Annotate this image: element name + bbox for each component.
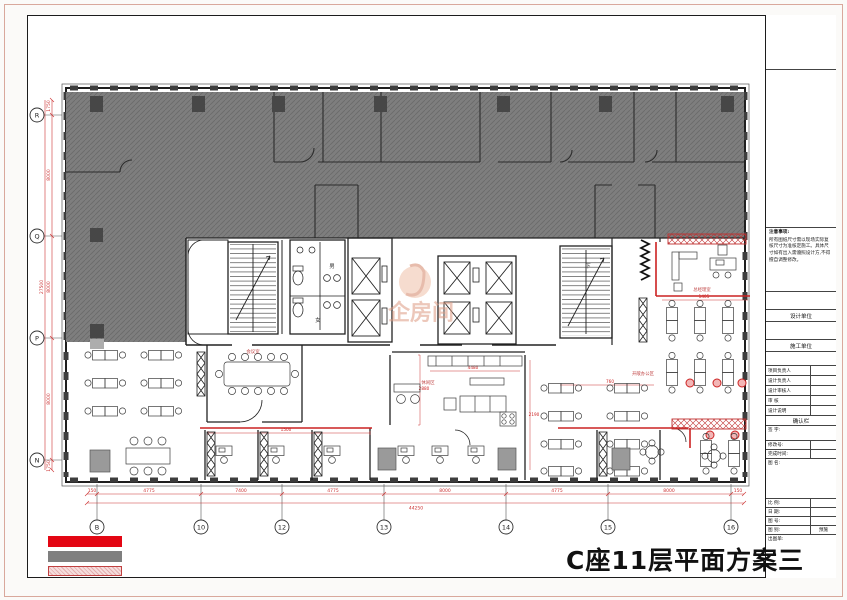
row-design-note: 设计说明	[766, 406, 836, 416]
floor-plan-svg: 1500 2880 4480 1405 760 2190 会议室 休闲区 总经理…	[0, 0, 847, 600]
confirm-label: 确认栏	[766, 416, 836, 426]
notes-title: 注意事项:	[769, 230, 833, 237]
svg-text:1750: 1750	[46, 460, 52, 472]
row-project-lead: 项目负责人	[766, 366, 836, 376]
svg-text:总经理室: 总经理室	[693, 286, 711, 293]
svg-text:15: 15	[604, 524, 612, 532]
svg-text:4775: 4775	[143, 488, 155, 494]
drawing-title: C座11层平面方案三	[566, 541, 762, 577]
watermark-text: 企房间	[387, 300, 454, 326]
bottom-dim-chain	[85, 492, 746, 505]
svg-text:10: 10	[197, 524, 205, 532]
wc-fixtures	[293, 247, 340, 317]
red-hatch-cabinet-top	[668, 234, 746, 244]
svg-text:44250: 44250	[409, 506, 423, 512]
red-hatch-cabinet-mid	[672, 419, 746, 429]
svg-text:女: 女	[315, 316, 321, 324]
red-highlight-chairs	[686, 379, 746, 439]
svg-text:12: 12	[278, 524, 286, 532]
construction-unit-label: 施工单位	[766, 340, 836, 352]
svg-text:B: B	[95, 524, 99, 532]
legend-swatch-gray	[48, 551, 122, 562]
svg-text:1750: 1750	[46, 100, 52, 112]
svg-text:14: 14	[502, 524, 510, 532]
svg-text:8000: 8000	[46, 393, 52, 405]
svg-text:男: 男	[329, 263, 335, 270]
title-block-notes: 注意事项: 所有图纸尺寸需以现场实际复核尺寸为准核定施工。具体尺寸如有出入需遵照…	[766, 228, 836, 292]
row-drawing-name: 图 名:	[766, 459, 836, 499]
svg-text:2190: 2190	[529, 412, 540, 417]
svg-text:1500: 1500	[281, 427, 292, 432]
svg-text:R: R	[35, 112, 40, 120]
svg-text:下: 下	[585, 263, 591, 270]
svg-text:150: 150	[734, 488, 743, 494]
drawing-sheet: 1500 2880 4480 1405 760 2190 会议室 休闲区 总经理…	[0, 0, 847, 600]
svg-text:8000: 8000	[46, 169, 52, 181]
row-design-lead: 设计负责人	[766, 376, 836, 386]
row-scale: 比 例:	[766, 499, 836, 508]
svg-text:N: N	[35, 457, 40, 465]
legend-swatch-hatch	[48, 566, 122, 576]
row-revision: 修改号:	[766, 441, 836, 450]
notes-body: 所有图纸尺寸需以现场实际复核尺寸为准核定施工。具体尺寸如有出入需遵照设计方,不得…	[769, 238, 830, 263]
svg-text:开敞办公区: 开敞办公区	[632, 370, 655, 377]
core	[186, 238, 744, 345]
design-unit-label: 设计单位	[766, 310, 836, 322]
title-block-empty-box	[766, 70, 836, 228]
svg-text:4775: 4775	[327, 488, 339, 494]
svg-text:27500: 27500	[39, 280, 45, 294]
svg-text:150: 150	[88, 488, 97, 494]
svg-text:8000: 8000	[439, 488, 451, 494]
column-light	[90, 339, 104, 349]
row-drawing-type: 图 别:预施	[766, 526, 836, 535]
title-block: 注意事项: 所有图纸尺寸需以现场实际复核尺寸为准核定施工。具体尺寸如有出入需遵照…	[765, 15, 836, 578]
row-finish-time: 完成时间:	[766, 450, 836, 459]
svg-text:760: 760	[606, 379, 614, 384]
svg-text:13: 13	[380, 524, 388, 532]
row-date: 日 期:	[766, 508, 836, 517]
row-design-review: 设计审核人	[766, 386, 836, 396]
row-audit: 审 核	[766, 396, 836, 406]
row-sign: 签 字:	[766, 426, 836, 441]
svg-text:4775: 4775	[551, 488, 563, 494]
title-block-logo-box	[766, 15, 836, 70]
row-drawing-no: 图 号:	[766, 517, 836, 526]
svg-text:8000: 8000	[663, 488, 675, 494]
legend	[48, 536, 128, 580]
svg-text:1405: 1405	[699, 294, 710, 299]
svg-text:休闲区: 休闲区	[421, 379, 435, 386]
svg-text:Q: Q	[34, 233, 39, 241]
svg-text:7400: 7400	[235, 488, 247, 494]
svg-text:P: P	[35, 335, 39, 343]
legend-swatch-red	[48, 536, 122, 547]
svg-text:16: 16	[727, 524, 735, 532]
svg-text:8000: 8000	[46, 281, 52, 293]
svg-text:会议室: 会议室	[246, 348, 260, 355]
